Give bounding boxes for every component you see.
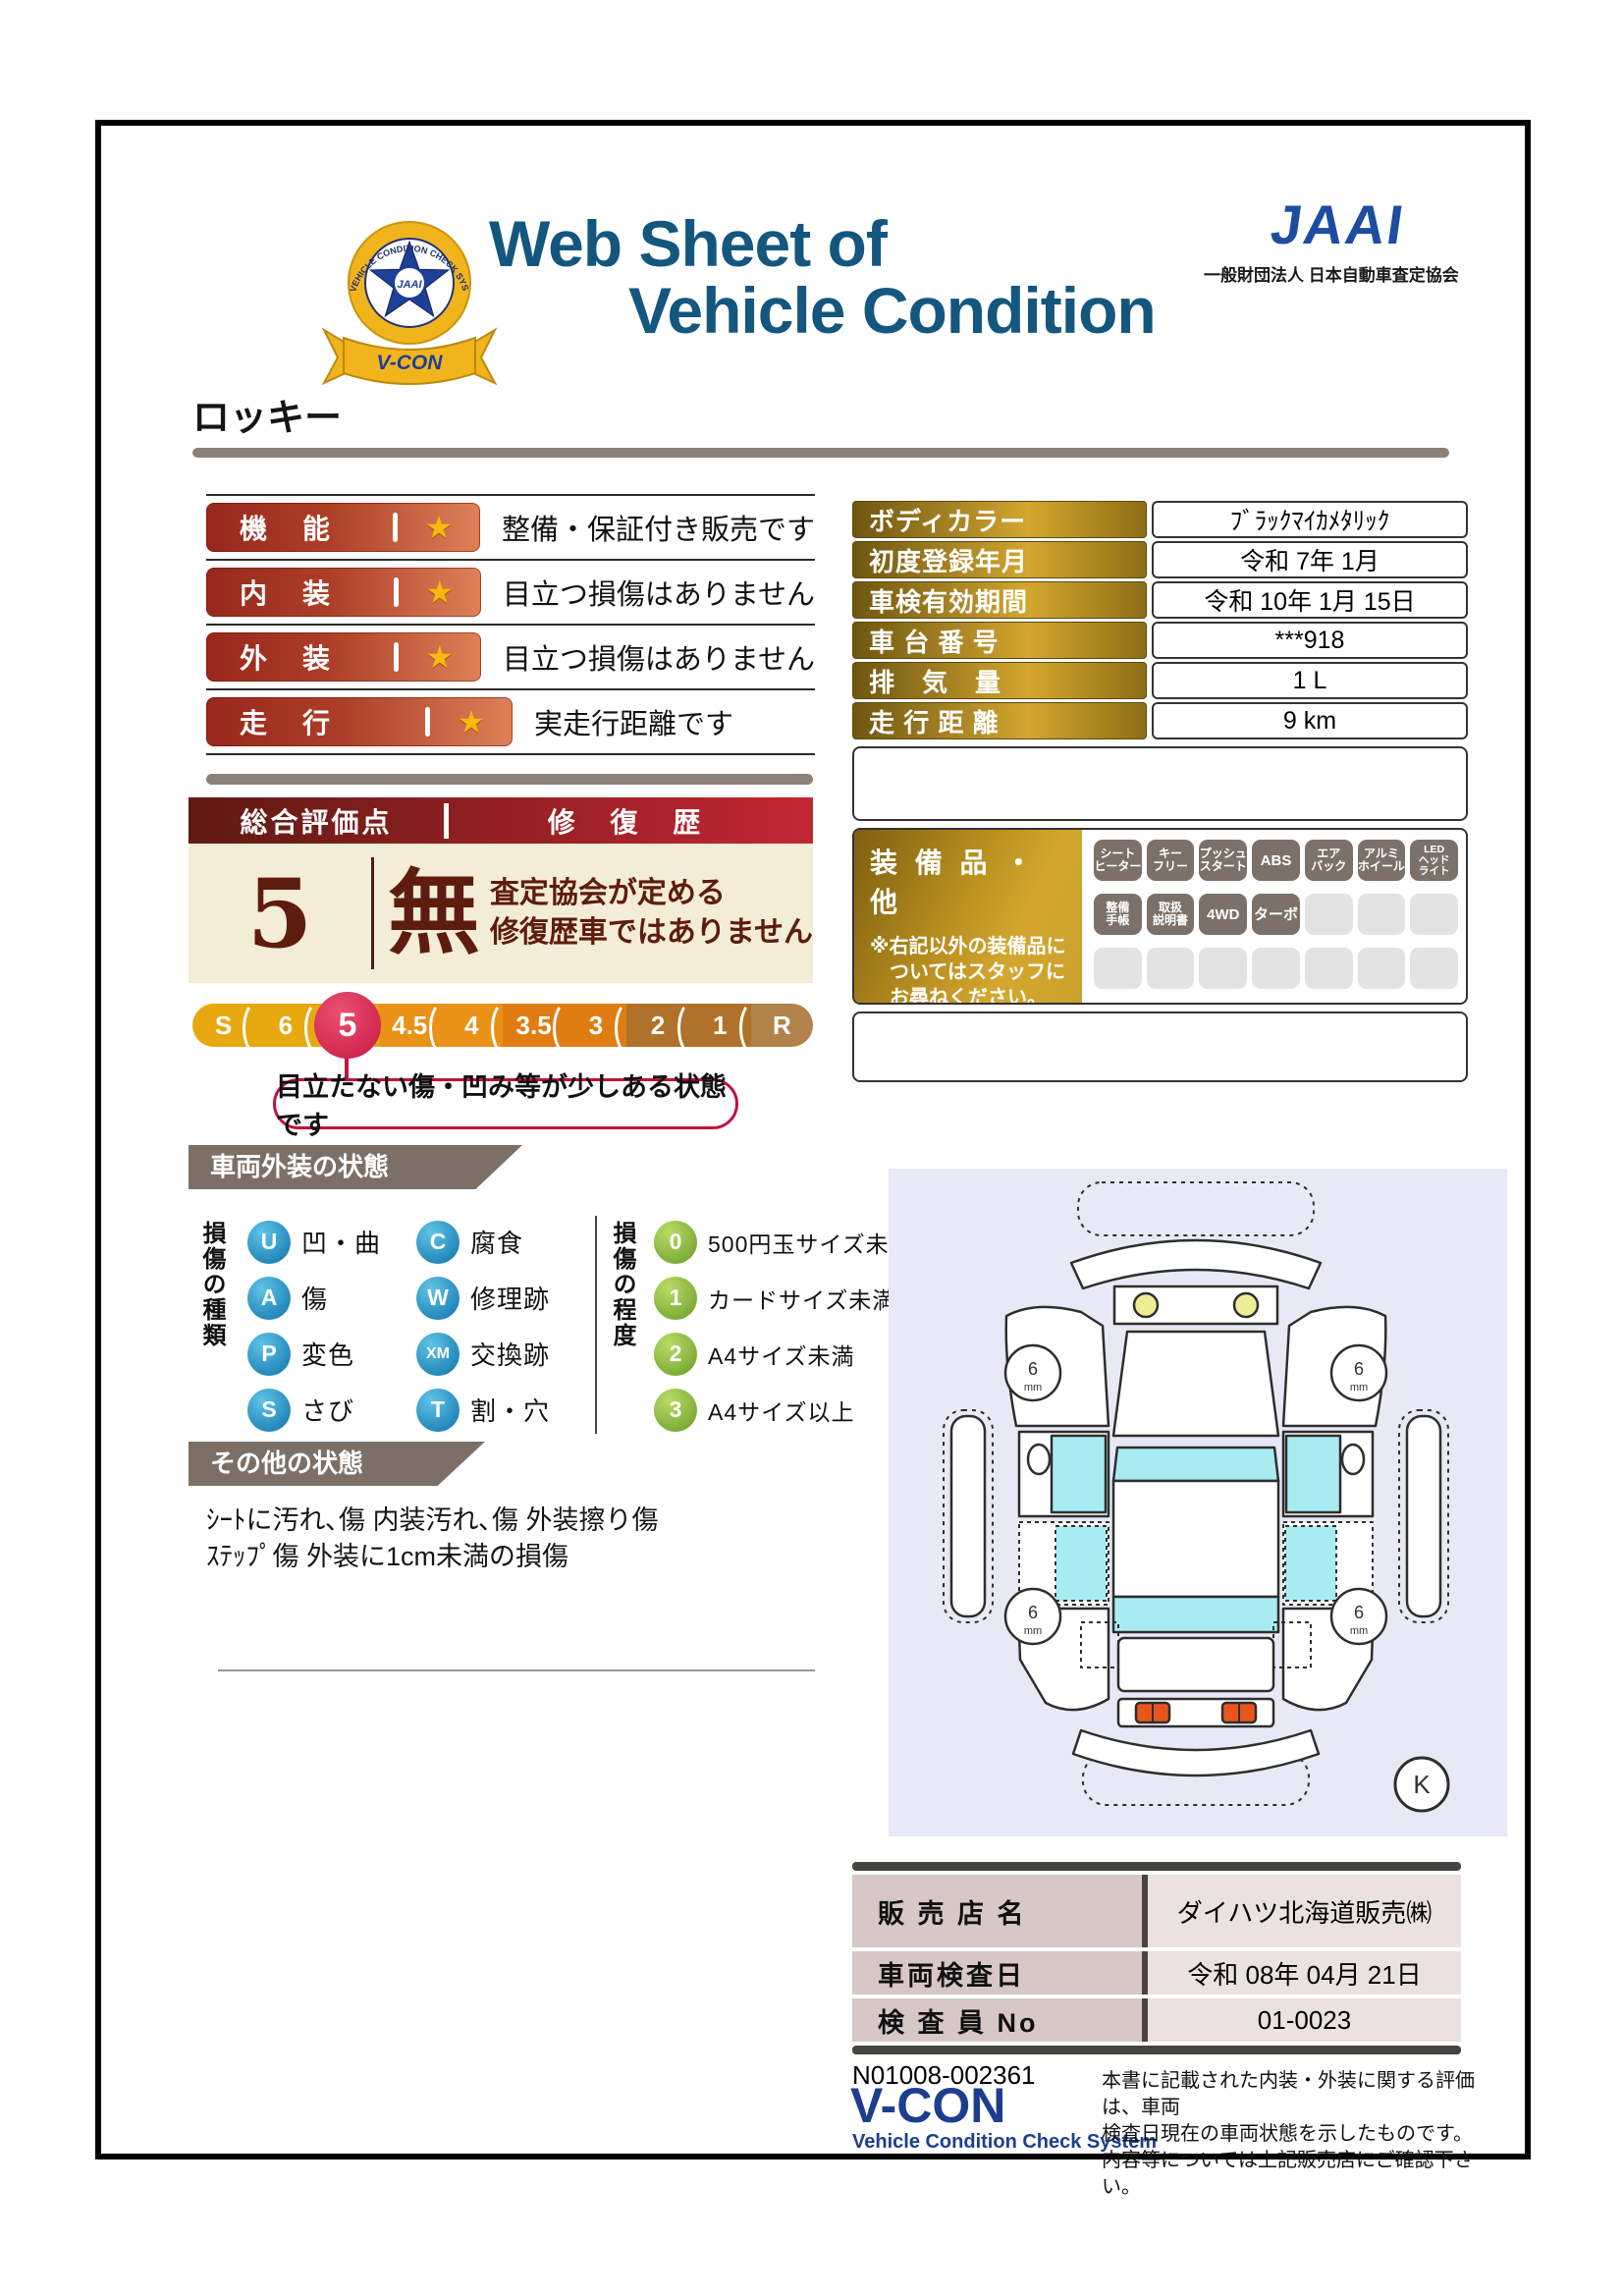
rating-label: 外 装 [206, 637, 334, 677]
equipment-badge: ABS [1252, 840, 1300, 881]
legend-item: XM交換跡 [416, 1326, 550, 1382]
divider-rule-top [192, 448, 1449, 458]
equipment-label-cell: 装 備 品 ・ 他 ※右記以外の装備品に ついてはスタッフに お尋ねください。 [854, 830, 1082, 1003]
damage-code-icon: S [247, 1389, 291, 1432]
grade-label: 3 [589, 1011, 603, 1041]
front-bumper [1071, 1240, 1321, 1288]
disclaimer-line1: 本書に記載された内装・外装に関する評価は、車両 [1102, 2068, 1506, 2121]
dealer-table-bottom-bar [852, 2046, 1461, 2054]
overall-score-title: 総合評価点 [189, 801, 444, 841]
equipment-panel: 装 備 品 ・ 他 ※右記以外の装備品に ついてはスタッフに お尋ねください。 … [852, 828, 1468, 1005]
info-table-row: 排 気 量1 L [852, 662, 1468, 699]
equipment-badge-empty [1358, 894, 1406, 935]
dealer-table-row: 車両検査日令和 08年 04月 21日 [852, 1951, 1461, 1995]
equipment-badge: エア バック [1305, 840, 1353, 881]
left-mirror-icon [1028, 1445, 1050, 1474]
overall-score-panel: 総合評価点 修 復 歴 5 無 査定協会が定める 修復歴車ではありません [189, 797, 813, 983]
segment-separator-icon [429, 1001, 459, 1056]
tread-front-right: 6 [1354, 1359, 1364, 1379]
grade-segment: R [751, 1004, 813, 1047]
legend-item: Sさび [247, 1382, 381, 1438]
other-state-line1: ｼｰﾄに汚れ､傷 内装汚れ､傷 外装擦り傷 [206, 1503, 659, 1539]
rating-description: 目立つ損傷はありません [503, 572, 815, 613]
damage-kind-title: 損傷の種類 [194, 1221, 229, 1348]
rating-description: 目立つ損傷はありません [503, 636, 815, 678]
right-rear-window [1285, 1526, 1336, 1601]
damage-label: 修理跡 [470, 1280, 550, 1316]
legend-divider [595, 1216, 597, 1434]
rating-badge: 機 能★ [206, 503, 480, 552]
legend-item: 1カードサイズ未満 [654, 1270, 913, 1326]
info-label: 走 行 距 離 [852, 702, 1147, 739]
damage-label: 凹・曲 [301, 1224, 381, 1260]
rating-label: 機 能 [206, 508, 334, 547]
damage-code-icon: T [416, 1389, 460, 1432]
info-table-row: ボディカラーﾌﾞﾗｯｸﾏｲｶﾒﾀﾘｯｸ [852, 501, 1468, 538]
vehicle-condition-sheet: JAAI VEHICLE CONDITION CHECK SYSTEM V-CO… [0, 0, 1623, 2296]
damage-code-icon: W [416, 1277, 460, 1320]
overall-score-header: 総合評価点 修 復 歴 [189, 797, 813, 844]
tread-unit-rr: mm [1350, 1625, 1368, 1637]
equipment-badge-empty [1358, 948, 1406, 989]
dealer-table-rows: 販 売 店 名ダイハツ北海道販売㈱車両検査日令和 08年 04月 21日検 査 … [852, 1875, 1461, 2042]
equipment-badge: LED ヘッド ライト [1410, 840, 1458, 881]
segment-separator-icon [677, 1001, 707, 1056]
left-sill [951, 1416, 985, 1616]
windshield-glass [1113, 1448, 1278, 1481]
grade-label: 4 [464, 1011, 478, 1041]
tread-unit-fl: mm [1024, 1382, 1042, 1394]
rear-bumper [1073, 1730, 1319, 1776]
right-mirror-icon [1342, 1445, 1364, 1474]
damage-code-icon: 1 [654, 1277, 697, 1320]
damage-code-icon: U [247, 1221, 291, 1264]
repair-history-title: 修 復 歴 [449, 801, 813, 841]
equipment-badge-empty [1094, 948, 1142, 989]
equipment-badge: 4WD [1199, 894, 1247, 935]
right-front-window [1286, 1436, 1340, 1512]
equipment-badge: 取扱 説明書 [1147, 894, 1195, 935]
legend-item: W修理跡 [416, 1270, 550, 1326]
equipment-badge-empty [1252, 948, 1300, 989]
grade-label: 2 [651, 1011, 665, 1041]
equipment-badge: ターボ [1252, 894, 1300, 935]
dealer-row-value: 令和 08年 04月 21日 [1148, 1951, 1461, 1995]
damage-label: A4サイズ未満 [708, 1338, 854, 1371]
legend-item: A傷 [247, 1270, 381, 1326]
rating-label: 走 行 [206, 702, 334, 741]
legend-item: T割・穴 [416, 1382, 550, 1438]
rating-row: 走 行★実走行距離です [206, 688, 815, 755]
equipment-badge-empty [1410, 894, 1458, 935]
hood-panel [1113, 1332, 1278, 1436]
tread-rear-left: 6 [1028, 1603, 1038, 1622]
dealer-info-table: 販 売 店 名ダイハツ北海道販売㈱車両検査日令和 08年 04月 21日検 査 … [852, 1862, 1461, 2054]
legend-item: 3A4サイズ以上 [654, 1382, 913, 1438]
selected-grade-marker: 5 [314, 992, 381, 1059]
info-label: 初度登録年月 [852, 541, 1147, 578]
info-table-row: 初度登録年月令和 7年 1月 [852, 541, 1468, 578]
repair-history-value: 無 [388, 867, 480, 959]
star-icon: ★ [399, 574, 481, 611]
other-state-line2: ｽﾃｯﾌﾟ傷 外装に1cm未満の損傷 [206, 1539, 659, 1575]
grade-label: 6 [279, 1011, 293, 1041]
equipment-title: 装 備 品 ・ 他 [870, 842, 1082, 920]
rating-description: 整備・保証付き販売です [502, 507, 815, 548]
empty-info-box [852, 746, 1468, 821]
vcon-emblem-icon: JAAI VEHICLE CONDITION CHECK SYSTEM V-CO… [316, 214, 503, 389]
damage-code-icon: 2 [654, 1333, 697, 1376]
sheet-title-line1: Web Sheet of [489, 206, 887, 281]
rear-window-glass [1113, 1597, 1278, 1632]
info-value: ***918 [1152, 622, 1468, 659]
equipment-badge-empty [1147, 948, 1195, 989]
info-label: ボディカラー [852, 501, 1147, 538]
repair-note-line2: 修復歴車ではありません [490, 916, 813, 949]
equipment-badge: アルミ ホイール [1358, 840, 1406, 881]
other-state-notes: ｼｰﾄに汚れ､傷 内装汚れ､傷 外装擦り傷 ｽﾃｯﾌﾟ傷 外装に1cm未満の損傷 [206, 1503, 659, 1575]
dealer-row-label: 販 売 店 名 [852, 1875, 1142, 1947]
grade-callout: 目立たない傷・凹み等が少しある状態です [273, 1078, 738, 1129]
damage-code-icon: 3 [654, 1389, 697, 1432]
dealer-table-top-bar [852, 1862, 1461, 1871]
equipment-note-line1: ※右記以外の装備品に [870, 934, 1082, 959]
legend-item: C腐食 [416, 1214, 550, 1270]
empty-equipment-box [852, 1011, 1468, 1082]
other-state-banner: その他の状態 [189, 1442, 485, 1486]
vehicle-name: ロッキー [192, 387, 342, 441]
damage-label: 割・穴 [470, 1392, 550, 1428]
damage-code-icon: P [247, 1333, 291, 1376]
rating-row: 外 装★目立つ損傷はありません [206, 624, 815, 688]
damage-code-icon: 0 [654, 1221, 697, 1264]
star-icon: ★ [399, 638, 481, 676]
grade-label: 1 [713, 1011, 727, 1041]
segment-separator-icon [739, 1001, 769, 1056]
info-table-row: 車 台 番 号***918 [852, 622, 1468, 659]
rating-row: 機 能★整備・保証付き販売です [206, 494, 815, 559]
damage-kind-column-2: C腐食W修理跡XM交換跡T割・穴 [416, 1214, 550, 1438]
equipment-badge: キー フリー [1147, 840, 1195, 881]
damage-label: 傷 [301, 1280, 328, 1316]
rating-description: 実走行距離です [534, 701, 733, 742]
damage-degree-title: 損傷の程度 [605, 1221, 639, 1348]
grade-scale: S654.543.5321R [192, 1004, 813, 1047]
equipment-note: ※右記以外の装備品に ついてはスタッフに お尋ねください。 [870, 934, 1082, 1005]
damage-code-icon: XM [416, 1333, 460, 1376]
tread-unit-fr: mm [1350, 1382, 1368, 1394]
roof-panel [1113, 1481, 1278, 1597]
rating-badge: 外 装★ [206, 632, 481, 682]
damage-label: A4サイズ以上 [708, 1394, 854, 1427]
left-front-window [1052, 1436, 1106, 1512]
damage-kind-column-1: U凹・曲A傷P変色Sさび [247, 1214, 381, 1438]
info-value: 9 km [1152, 702, 1468, 739]
grade-label: 3.5 [516, 1011, 552, 1041]
legend-item: P変色 [247, 1326, 381, 1382]
info-label: 排 気 量 [852, 662, 1147, 699]
divider-rule-ratings [206, 774, 813, 785]
equipment-badge-grid: シート ヒーターキー フリープッシュ スタートABSエア バックアルミ ホイール… [1082, 830, 1466, 1003]
equipment-badge-empty [1199, 948, 1247, 989]
info-label: 車 台 番 号 [852, 622, 1147, 659]
damage-code-icon: C [416, 1221, 460, 1264]
damage-label: 500円玉サイズ未満 [708, 1226, 913, 1259]
footer-disclaimer: 本書に記載された内装・外装に関する評価は、車両 検査日現在の車両状態を示したもの… [1102, 2068, 1506, 2201]
tailgate-panel [1118, 1638, 1273, 1691]
emblem-ribbon-label: V-CON [377, 352, 444, 374]
divider-rule-notes [218, 1669, 815, 1671]
damage-code-icon: A [247, 1277, 291, 1320]
dealer-row-label: 車両検査日 [852, 1951, 1142, 1995]
headlight-left-icon [1134, 1293, 1158, 1317]
legend-item: U凹・曲 [247, 1214, 381, 1270]
dealer-table-row: 検 査 員 No01-0023 [852, 1998, 1461, 2042]
segment-separator-icon [243, 1001, 272, 1056]
legend-item: 0500円玉サイズ未満 [654, 1214, 913, 1270]
info-table-row: 走 行 距 離9 km [852, 702, 1468, 739]
sheet-title-line2: Vehicle Condition [628, 273, 1156, 348]
damage-label: 腐食 [470, 1224, 523, 1260]
exterior-section-banner: 車両外装の状態 [189, 1145, 522, 1189]
overall-score-value: 5 [189, 844, 371, 983]
rating-label: 内 装 [206, 573, 334, 612]
repair-history-note: 査定協会が定める 修復歴車ではありません [490, 874, 813, 953]
equipment-badge: シート ヒーター [1094, 840, 1142, 881]
vehicle-info-table: ボディカラーﾌﾞﾗｯｸﾏｲｶﾒﾀﾘｯｸ初度登録年月令和 7年 1月車検有効期間令… [852, 501, 1468, 742]
tread-unit-rl: mm [1024, 1625, 1042, 1637]
overall-score-body: 5 無 査定協会が定める 修復歴車ではありません [189, 844, 813, 983]
vcon-wordmark: V-CON [850, 2082, 1005, 2129]
left-rear-window [1055, 1526, 1107, 1601]
equipment-note-line2: ついてはスタッフに [870, 959, 1082, 985]
disclaimer-line3: 内容等については上記販売店にご確認下さい。 [1102, 2148, 1506, 2201]
grade-label: 4.5 [392, 1011, 427, 1041]
info-value: ﾌﾞﾗｯｸﾏｲｶﾒﾀﾘｯｸ [1152, 501, 1468, 538]
star-icon: ★ [398, 509, 480, 546]
equipment-note-line3: お尋ねください。 [870, 985, 1082, 1005]
damage-degree-list: 0500円玉サイズ未満1カードサイズ未満2A4サイズ未満3A4サイズ以上 [654, 1214, 913, 1438]
emblem-center-label: JAAI [397, 279, 422, 291]
tread-front-left: 6 [1028, 1359, 1038, 1379]
headlight-right-icon [1234, 1293, 1258, 1317]
jaai-logo: JAAI [1267, 192, 1409, 256]
inspection-mark: K [1413, 1770, 1431, 1799]
star-icon: ★ [430, 703, 513, 740]
dealer-row-label: 検 査 員 No [852, 1998, 1142, 2042]
front-bumper-outline [1078, 1182, 1314, 1235]
repair-note-line1: 査定協会が定める [490, 877, 726, 909]
rating-badge: 走 行★ [206, 697, 513, 746]
grade-label: S [215, 1011, 232, 1041]
dealer-row-value: 01-0023 [1148, 1998, 1461, 2042]
dealer-row-value: ダイハツ北海道販売㈱ [1148, 1875, 1461, 1947]
car-damage-diagram: 6 mm 6 mm 6 mm 6 mm K [889, 1169, 1507, 1836]
dealer-table-row: 販 売 店 名ダイハツ北海道販売㈱ [852, 1875, 1461, 1947]
equipment-badge-empty [1410, 948, 1458, 989]
info-value: 1 L [1152, 662, 1468, 699]
info-value: 令和 10年 1月 15日 [1152, 581, 1468, 619]
right-sill [1407, 1416, 1440, 1616]
info-value: 令和 7年 1月 [1152, 541, 1468, 578]
damage-label: 変色 [301, 1336, 354, 1372]
equipment-badge: プッシュ スタート [1199, 840, 1247, 881]
category-ratings: 機 能★整備・保証付き販売です内 装★目立つ損傷はありません外 装★目立つ損傷は… [206, 494, 815, 755]
grade-label: R [773, 1011, 791, 1041]
equipment-badge-empty [1305, 948, 1353, 989]
info-label: 車検有効期間 [852, 581, 1147, 619]
jaai-org-name: 一般財団法人 日本自動車査定協会 [1204, 261, 1459, 286]
disclaimer-line2: 検査日現在の車両状態を示したものです。 [1102, 2121, 1506, 2148]
damage-label: カードサイズ未満 [708, 1282, 895, 1315]
rating-badge: 内 装★ [206, 568, 481, 617]
damage-label: さび [301, 1392, 354, 1428]
rating-row: 内 装★目立つ損傷はありません [206, 559, 815, 624]
info-table-row: 車検有効期間令和 10年 1月 15日 [852, 581, 1468, 619]
legend-item: 2A4サイズ未満 [654, 1326, 913, 1382]
repair-history-cell: 無 査定協会が定める 修復歴車ではありません [374, 844, 813, 983]
equipment-badge-empty [1305, 894, 1353, 935]
equipment-badge: 整備 手帳 [1094, 894, 1142, 935]
tread-rear-right: 6 [1354, 1603, 1364, 1622]
damage-label: 交換跡 [470, 1336, 550, 1372]
